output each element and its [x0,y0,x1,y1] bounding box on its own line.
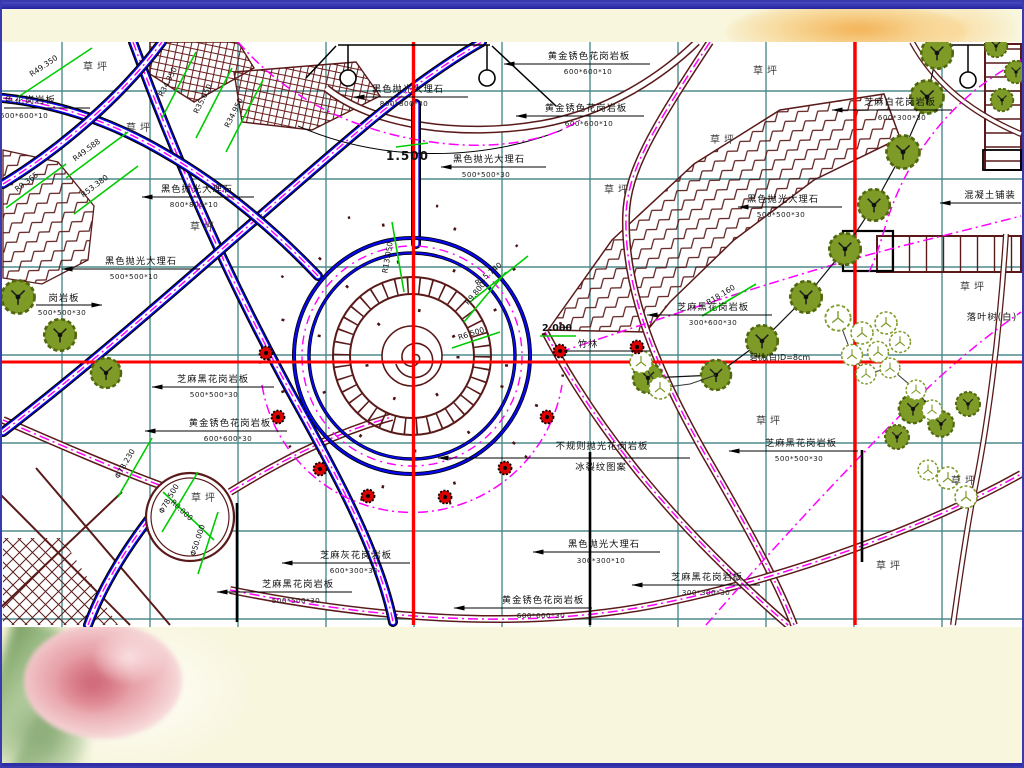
column-symbol [960,72,976,88]
svg-text:黄金锈色花岗岩板: 黄金锈色花岗岩板 [189,417,271,429]
svg-text:500*500*30: 500*500*30 [272,596,320,605]
material-annotation: 芝麻黑花岗岩板500*500*30 [729,437,858,463]
column-symbol [340,70,356,86]
svg-text:500*500*30: 500*500*30 [190,390,238,399]
tree-icon [991,89,1014,112]
svg-text:600*600*30: 600*600*30 [204,434,252,443]
svg-text:500*500*30: 500*500*30 [775,454,823,463]
cad-plan-canvas: R49.350 R34.350 R35.650 R34.950 R49.588 … [2,42,1022,627]
carnation-bloom-highlight [94,631,164,683]
svg-text:600*600*10: 600*600*10 [564,67,612,76]
svg-text:R53.380: R53.380 [79,173,110,199]
svg-text:600*300*30: 600*300*30 [330,566,378,575]
tree-icon [44,319,76,351]
svg-text:黑色抛光大理石: 黑色抛光大理石 [453,153,525,165]
slide-bottom-band [2,627,1022,763]
tree-icon [91,358,121,388]
svg-text:冰裂纹图案: 冰裂纹图案 [575,461,627,473]
svg-text:混凝土铺装: 混凝土铺装 [964,189,1016,201]
flowering-shrub-symbols [260,341,644,504]
material-annotation: 芝麻灰花岗岩板600*300*30 [282,549,410,575]
shrub-icon [875,312,897,334]
radius-dimension: Φ78.230 [113,438,152,497]
shrub-icon [922,400,942,420]
shrub-icon [955,486,977,508]
peach-tree-label: 碧桃(白)D=8cm [750,352,811,362]
tree-icon [858,189,890,221]
radius-dimension: R49.588 [66,132,128,178]
column-symbol [479,70,495,86]
svg-text:芝麻白花岗岩板: 芝麻白花岗岩板 [864,96,936,108]
lawn-label: 草坪 [960,280,988,293]
svg-text:300*300*30: 300*300*30 [682,588,730,597]
svg-text:岗岩板: 岗岩板 [49,292,80,304]
lawn-label: 草坪 [710,133,738,146]
shrub-icon [880,358,900,378]
radius-dimension: R53.380 [74,166,138,214]
radius-dimension: R6.500 [452,325,500,348]
svg-text:300*600*30: 300*600*30 [689,318,737,327]
lawn-label: 草坪 [126,121,154,134]
svg-text:黑色抛光大理石: 黑色抛光大理石 [105,255,177,267]
shrub-icon [842,345,863,366]
shrub-icon [825,305,850,330]
svg-text:不规则抛光花岗岩板: 不规则抛光花岗岩板 [556,440,649,452]
svg-text:600*600*30: 600*600*30 [517,611,565,620]
lawn-label: 草坪 [83,60,111,73]
tree-icon [885,425,909,449]
svg-text:黑色抛光大理石: 黑色抛光大理石 [568,538,640,550]
shrub-icon [649,377,671,399]
lawn-label: 草坪 [604,183,632,196]
tree-icon [790,281,822,313]
tree-icon [887,136,920,169]
material-annotation: 黄金锈色花岗岩板600*600*30 [145,417,287,443]
tree-icon [2,281,34,314]
svg-text:芝麻黑花岗岩板: 芝麻黑花岗岩板 [765,437,837,449]
svg-text:芝麻黑花岗岩板: 芝麻黑花岗岩板 [177,373,249,385]
svg-text:黄金锈色花岗岩板: 黄金锈色花岗岩板 [548,50,630,62]
svg-text:芝麻灰花岗岩板: 芝麻灰花岗岩板 [320,549,392,561]
svg-text:R49.588: R49.588 [71,137,102,163]
elevation-value: 2.000 [542,323,572,334]
material-annotation: 岗岩板500*500*30 [36,292,102,317]
svg-text:300*300*10: 300*300*10 [577,556,625,565]
svg-text:黄金锈色花岗岩板: 黄金锈色花岗岩板 [545,102,627,114]
concrete-annotation: 混凝土铺装 [940,189,1021,203]
tree-icon [956,392,980,416]
lawn-label: 草坪 [876,559,904,572]
radius-dimension: R49.350 [18,48,92,97]
lawn-label: 草坪 [753,64,781,77]
svg-text:600*300*30: 600*300*30 [878,113,926,122]
svg-text:R49.350: R49.350 [28,53,60,78]
svg-text:R13.050: R13.050 [380,241,394,274]
slide-bottom-strip [0,763,1024,768]
material-annotation: 芝麻黑花岗岩板500*500*30 [152,373,274,399]
tree-icon [829,233,861,265]
shrub-icon [630,351,652,373]
svg-text:黑色抛光大理石: 黑色抛光大理石 [161,183,233,195]
presentation-slide: R49.350 R34.350 R35.650 R34.950 R49.588 … [0,0,1024,768]
slide-top-band [2,9,1022,42]
svg-text:600*600*10: 600*600*10 [2,111,48,120]
svg-text:500*500*30: 500*500*30 [462,170,510,179]
svg-text:500*500*30: 500*500*30 [757,210,805,219]
material-annotation: 黄金锈色花岗岩板600*600*10 [504,50,650,76]
slide-top-strip [0,0,1024,9]
svg-text:芝麻黑花岗岩板: 芝麻黑花岗岩板 [262,578,334,590]
elevation-value: 1.500 [386,149,429,163]
svg-text:竹林: 竹林 [578,338,599,350]
lawn-label: 草坪 [191,491,219,504]
material-annotation: 黑色抛光大理石300*300*10 [533,538,660,565]
svg-text:500*500*10: 500*500*10 [110,272,158,281]
lawn-label: 草坪 [756,414,784,427]
deciduous-tree-label: 落叶树(白) [967,311,1017,323]
shrub-icon [890,332,911,353]
svg-text:色花岗岩板: 色花岗岩板 [4,94,56,106]
svg-text:600*600*10: 600*600*10 [565,119,613,128]
lawn-label: 草坪 [190,220,218,233]
shrub-icon [906,380,926,400]
svg-text:黑色抛光大理石: 黑色抛光大理石 [372,83,444,95]
svg-text:芝麻黑花岗岩板: 芝麻黑花岗岩板 [677,301,749,313]
shrub-icon [856,364,876,384]
svg-text:黄金锈色花岗岩板: 黄金锈色花岗岩板 [502,594,584,606]
svg-text:芝麻黑花岗岩板: 芝麻黑花岗岩板 [671,571,743,583]
svg-text:800*800*30: 800*800*30 [380,99,428,108]
svg-text:黑色抛光大理石: 黑色抛光大理石 [747,193,819,205]
paving-strip-right [877,236,1021,272]
tree-icon [921,42,953,69]
shrub-icon [918,460,938,480]
lawn-label: 草坪 [951,474,979,487]
shrub-icon [851,322,873,344]
svg-text:800*800*10: 800*800*10 [170,200,218,209]
material-annotation: 黑色抛光大理石500*500*30 [441,153,546,179]
site-plan-drawing: R49.350 R34.350 R35.650 R34.950 R49.588 … [2,42,1022,627]
svg-text:500*500*30: 500*500*30 [38,308,86,317]
